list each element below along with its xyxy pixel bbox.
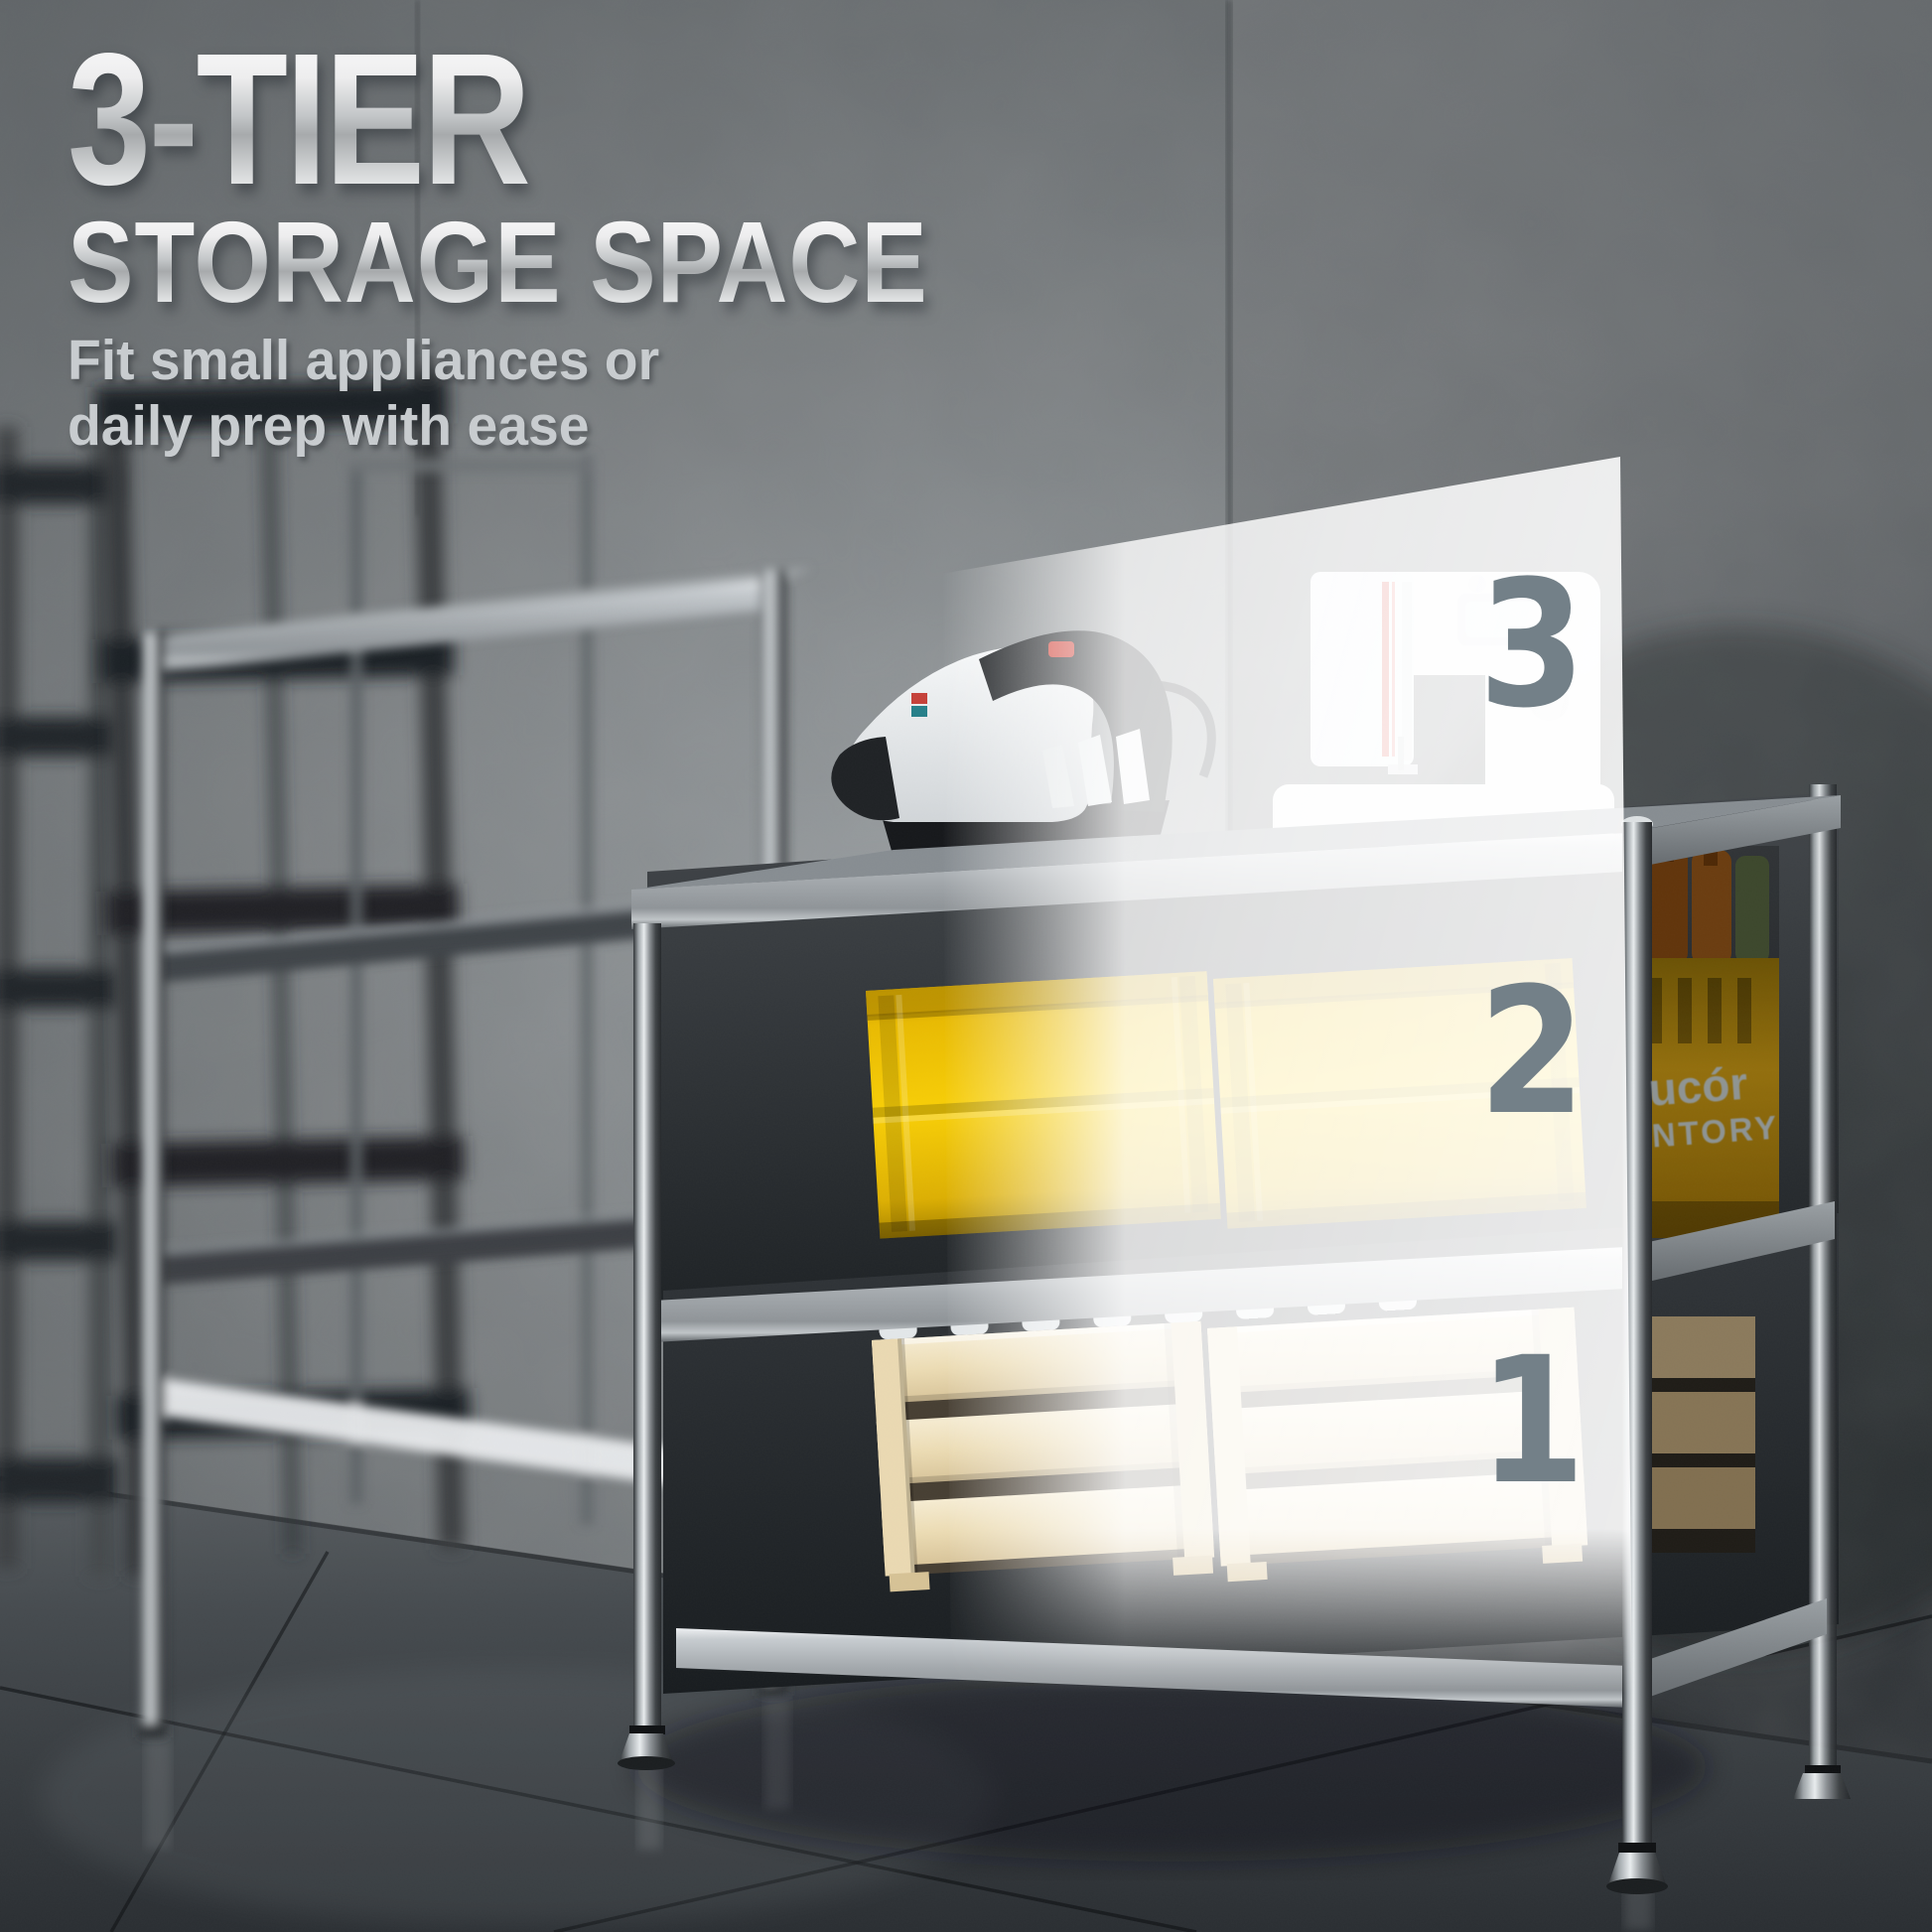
scene-render [0,0,1932,1932]
film-grain [0,0,1932,1932]
product-infographic: ucór NTORY 3 2 1 3-TIER STORAGE SPACE Fi… [0,0,1932,1932]
